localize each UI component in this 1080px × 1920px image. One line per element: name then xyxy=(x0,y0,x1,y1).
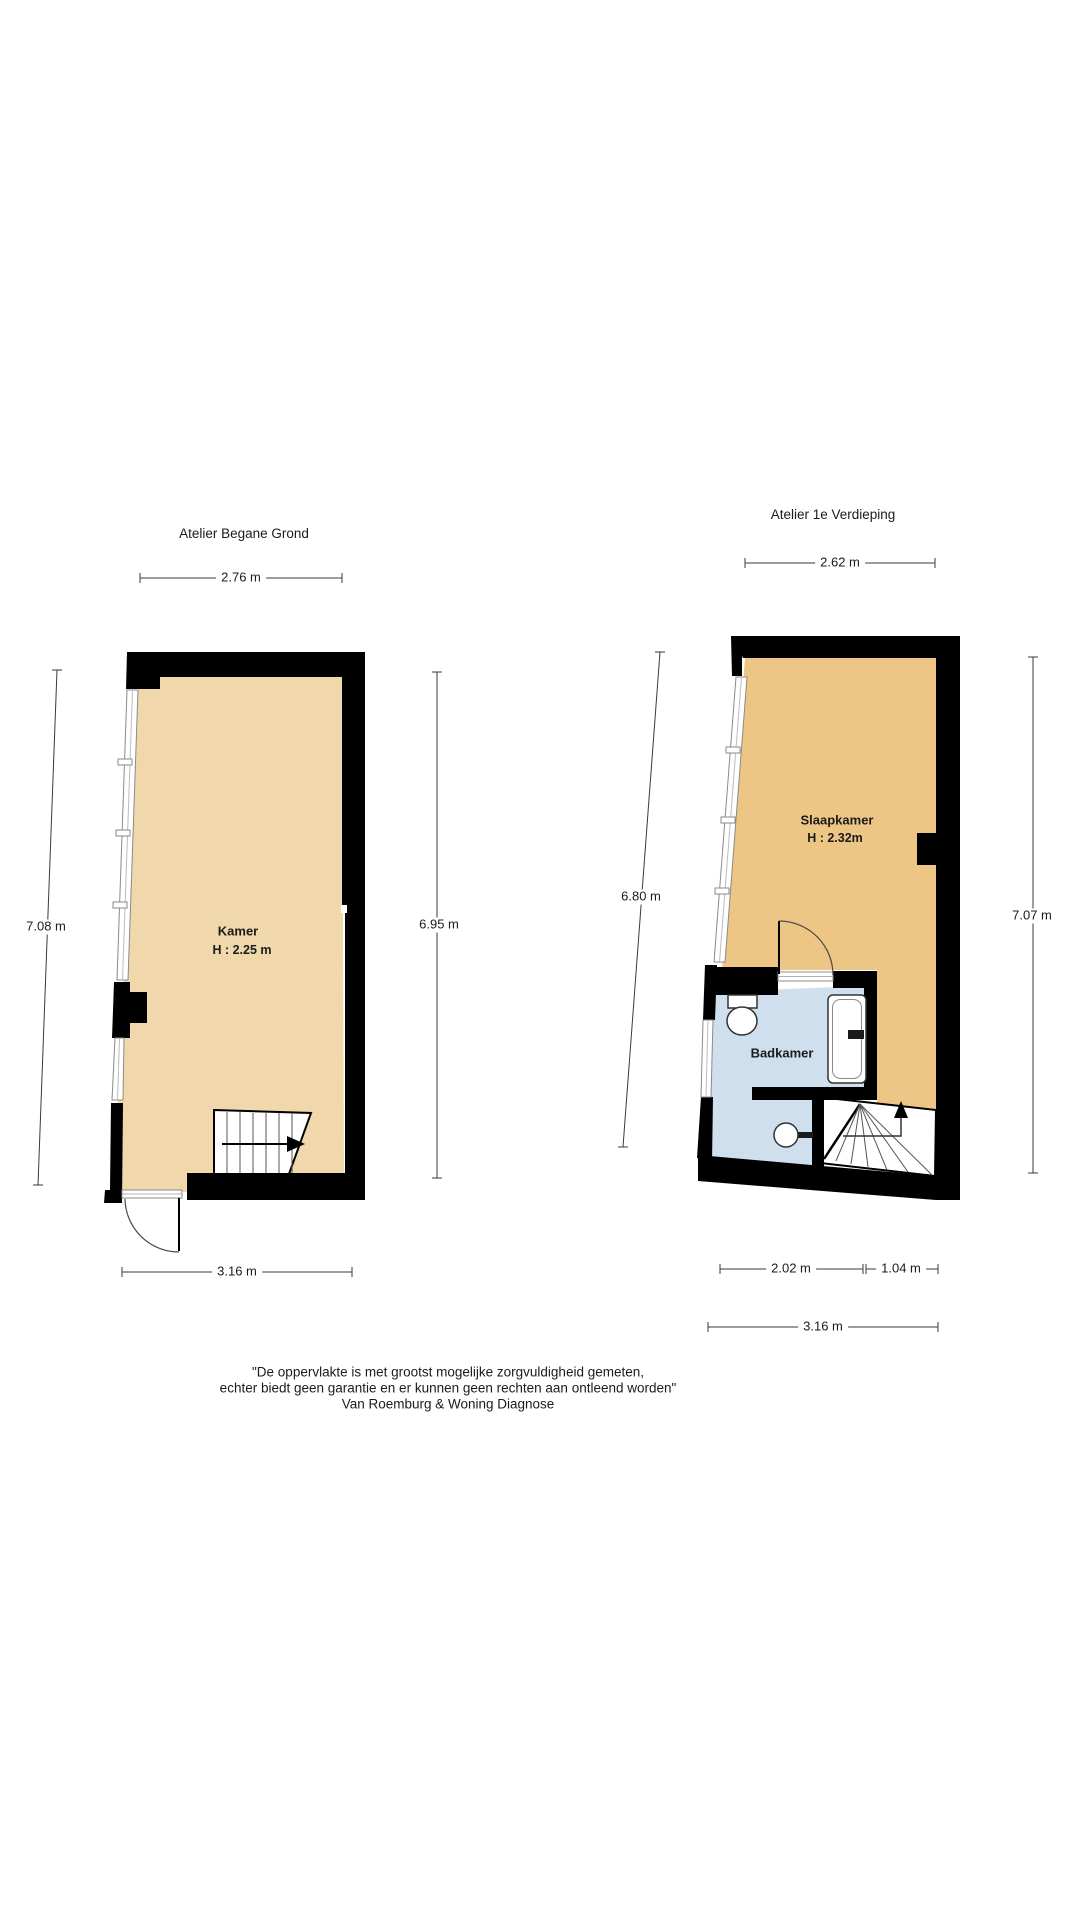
dim-ground-bottom: 3.16 m xyxy=(212,1265,262,1280)
window-mullion xyxy=(116,830,130,836)
toilet-icon xyxy=(727,995,757,1035)
wall-bath-bottom xyxy=(752,1087,877,1100)
dim-first-bottom-left: 2.02 m xyxy=(766,1262,816,1277)
disclaimer-line-1: "De oppervlakte is met grootst mogelijke… xyxy=(252,1365,644,1380)
window-mullion xyxy=(726,747,740,753)
wall-top xyxy=(128,652,365,677)
plan-title-first: Atelier 1e Verdieping xyxy=(771,507,896,523)
first-floor-plan xyxy=(697,636,960,1200)
dim-first-top: 2.62 m xyxy=(815,556,865,571)
dim-ground-top: 2.76 m xyxy=(216,571,266,586)
dim-first-left: 6.80 m xyxy=(616,890,666,905)
ground-entry-door xyxy=(122,1190,182,1252)
room-height-kamer: H : 2.25 m xyxy=(212,943,271,957)
disclaimer-line-2: echter biedt geen garantie en er kunnen … xyxy=(220,1381,677,1396)
plan-title-ground: Atelier Begane Grond xyxy=(179,526,309,542)
room-label-kamer: Kamer xyxy=(218,925,258,940)
room-height-slaapkamer: H : 2.32m xyxy=(807,831,863,845)
wall-top-left-block xyxy=(731,636,742,676)
dim-first-right: 7.07 m xyxy=(1007,909,1057,924)
room-label-slaapkamer: Slaapkamer xyxy=(801,814,874,829)
dim-first-bottom-right: 1.04 m xyxy=(876,1262,926,1277)
dim-ground-left: 7.08 m xyxy=(21,920,71,935)
wall-right-notch xyxy=(917,833,936,865)
wall-right xyxy=(936,658,960,1200)
floorplan-page: Atelier Begane Grond Atelier 1e Verdiepi… xyxy=(0,0,1080,1920)
door-swing-arc xyxy=(125,1199,179,1252)
dim-ground-right: 6.95 m xyxy=(414,918,464,933)
window-mullion xyxy=(118,759,132,765)
window-mullion xyxy=(113,902,127,908)
wall-step-notch xyxy=(341,905,347,913)
floorplan-drawing xyxy=(0,0,1080,1920)
wall-top-left-block xyxy=(126,652,160,689)
dim-first-bottom-total: 3.16 m xyxy=(798,1320,848,1335)
window-mullion xyxy=(721,817,735,823)
window-mullion xyxy=(715,888,729,894)
stairs-first xyxy=(819,1097,936,1176)
disclaimer-line-3: Van Roemburg & Woning Diagnose xyxy=(342,1397,555,1412)
wall-top xyxy=(731,636,960,658)
wall-stair-divider xyxy=(812,1100,824,1170)
bathtub-icon xyxy=(828,995,866,1083)
wall-bath-top-left xyxy=(707,967,778,995)
wall-left-lower xyxy=(104,1103,123,1203)
room-label-badkamer: Badkamer xyxy=(751,1047,814,1062)
wall-left-lower xyxy=(697,1097,713,1162)
